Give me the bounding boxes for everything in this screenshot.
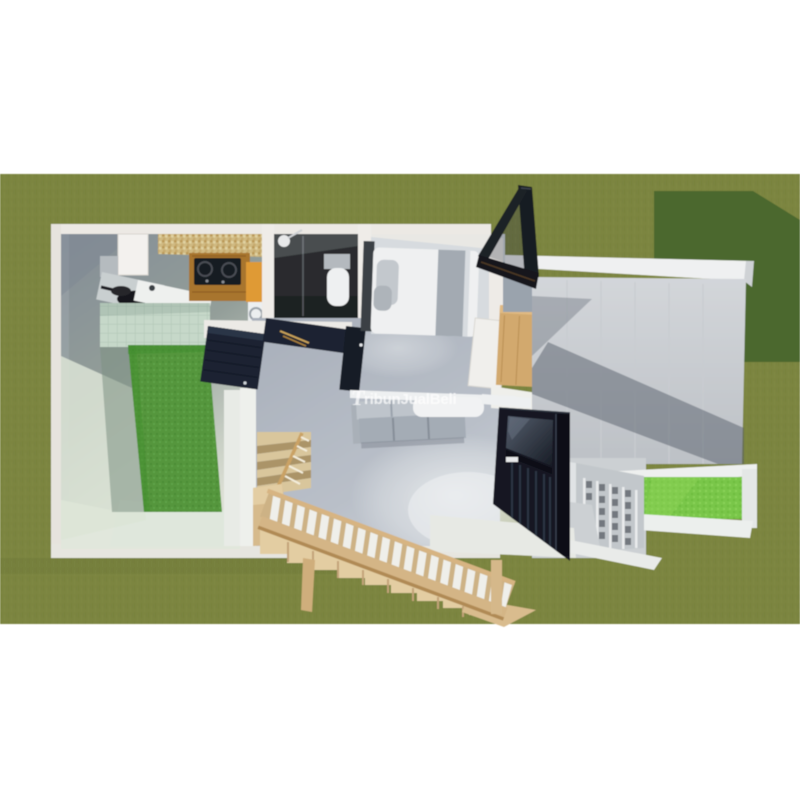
svg-text:ribunJualBeli: ribunJualBeli [364, 391, 456, 408]
